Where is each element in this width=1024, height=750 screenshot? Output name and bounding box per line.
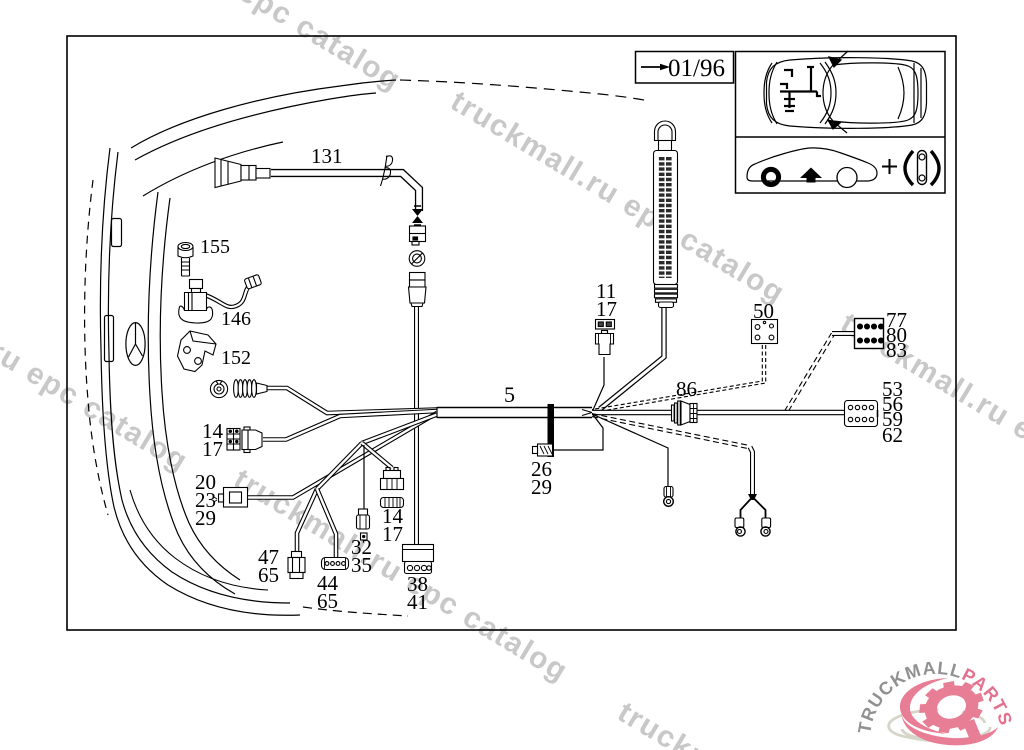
svg-text:29: 29 [531,475,552,499]
svg-text:131: 131 [311,144,343,168]
svg-text:155: 155 [200,236,230,258]
svg-text:17: 17 [382,522,403,546]
svg-text:5: 5 [504,382,515,407]
svg-text:83: 83 [886,338,907,362]
svg-text:01/96: 01/96 [668,55,725,82]
svg-text:17: 17 [596,297,617,321]
svg-text:152: 152 [221,347,251,369]
svg-text:17: 17 [202,437,223,461]
svg-text:146: 146 [221,308,251,330]
svg-text:29: 29 [195,506,216,530]
svg-text:41: 41 [407,590,428,614]
svg-text:35: 35 [351,553,372,577]
svg-text:86: 86 [676,377,697,401]
svg-text:50: 50 [753,299,774,323]
svg-text:62: 62 [882,423,903,447]
svg-text:65: 65 [258,563,279,587]
svg-text:65: 65 [317,589,338,613]
